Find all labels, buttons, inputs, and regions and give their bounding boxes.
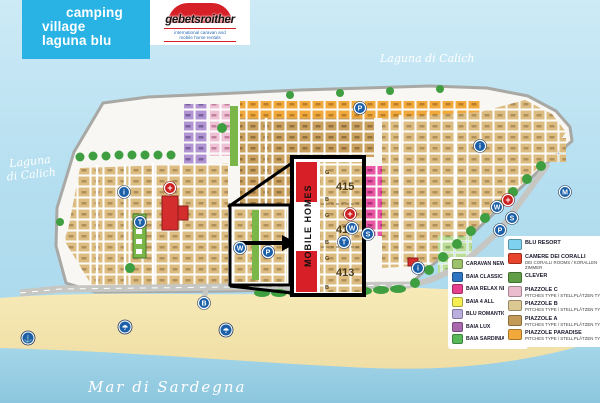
svg-text:G: G: [325, 170, 329, 176]
legend-swatch: [452, 309, 463, 319]
parking-icon: P: [262, 246, 275, 259]
shower-icon: S: [362, 228, 375, 241]
legend-swatch: [508, 272, 522, 283]
pitch-field-a-top: [292, 118, 374, 157]
title-line-2: village: [22, 20, 150, 34]
svg-text:B: B: [201, 301, 206, 308]
camere-dei-coralli-building: [162, 196, 178, 230]
svg-text:B: B: [325, 240, 329, 246]
phone-icon: T: [134, 216, 147, 229]
sea-label: Mar di Sardegna: [88, 378, 246, 396]
legend-item: PIAZZOLE APITCHES TYPE / STELLPLÄTZEN TY…: [508, 315, 600, 327]
pitch-field-purple: [184, 104, 208, 164]
first-aid-icon: +: [344, 208, 357, 221]
logo-rule: [164, 41, 236, 42]
svg-text:i: i: [479, 144, 481, 151]
campsite-map: MOBILE HOMES G 415 B G 414 B G 413 B i T…: [0, 0, 600, 403]
wc-icon: W: [234, 242, 247, 255]
anchor-icon: ⚓: [21, 331, 35, 345]
legend-swatch: [452, 297, 463, 307]
legend-swatch: [508, 253, 522, 264]
legend-swatch: [508, 315, 522, 326]
svg-text:P: P: [358, 106, 363, 113]
legend-item: CLEVER: [508, 272, 600, 283]
legend-item: PIAZZOLE BPITCHES TYPE / STELLPLÄTZEN TY…: [508, 300, 600, 312]
svg-text:+: +: [505, 195, 510, 205]
legend-item: PIAZZOLE CPITCHES TYPE / STELLPLÄTZEN TY…: [508, 286, 600, 298]
legend-swatch: [452, 322, 463, 332]
svg-text:⚓: ⚓: [24, 334, 33, 343]
svg-text:S: S: [510, 216, 515, 223]
legend-swatch: [452, 334, 463, 344]
phone-icon: T: [338, 236, 351, 249]
mobile-homes-title: MOBILE HOMES: [303, 184, 313, 267]
section-415: 415: [336, 181, 354, 193]
info-icon: i: [118, 186, 131, 199]
legend-swatch: [508, 329, 522, 340]
clever-strip: [230, 106, 238, 166]
shower-icon: S: [506, 212, 519, 225]
info-icon: i: [412, 262, 425, 275]
svg-text:W: W: [494, 205, 501, 212]
parking-icon: P: [494, 224, 507, 237]
section-413: 413: [336, 267, 354, 279]
svg-text:G: G: [325, 213, 329, 219]
lagoon-label-left: Laguna di Calich: [5, 152, 57, 183]
bus-stop-icon: B: [198, 297, 211, 310]
svg-text:S: S: [366, 232, 371, 239]
svg-text:B: B: [325, 197, 329, 203]
title-line-3: laguna blu: [22, 34, 150, 48]
gebetsroither-logo: gebetsroither international caravan and …: [150, 0, 250, 45]
info-icon: i: [474, 140, 487, 153]
wc-icon: W: [491, 201, 504, 214]
first-aid-icon: +: [164, 182, 177, 195]
pitch-field-relax-magenta: [366, 166, 382, 236]
legend-areas: BLU RESORT CAMERE DEI CORALLIDEI CORALLI…: [504, 236, 600, 347]
svg-text:+: +: [347, 209, 352, 219]
lagoon-label-top: Laguna di Calich: [380, 52, 474, 65]
svg-text:T: T: [138, 220, 143, 227]
title-line-1: camping: [22, 6, 150, 20]
legend-swatch: [452, 272, 463, 282]
legend-item: PIAZZOLE PARADISEPITCHES TYPE / STELLPLÄ…: [508, 329, 600, 341]
market-icon: M: [559, 186, 572, 199]
svg-text:T: T: [342, 240, 347, 247]
svg-text:+: +: [167, 183, 172, 193]
svg-text:M: M: [562, 190, 568, 197]
legend-item: CAMERE DEI CORALLIDEI CORALLI ROOMS / KO…: [508, 253, 600, 270]
parking-icon: P: [354, 102, 367, 115]
svg-text:i: i: [417, 266, 419, 273]
svg-text:i: i: [123, 190, 125, 197]
legend-swatch: [452, 259, 463, 269]
svg-text:B: B: [325, 285, 329, 291]
logo-name: gebetsroither: [150, 14, 250, 26]
svg-text:☂: ☂: [223, 327, 230, 335]
legend-item: BLU RESORT: [508, 239, 600, 250]
svg-text:W: W: [349, 226, 356, 233]
umbrella-icon: ☂: [219, 323, 233, 337]
svg-text:W: W: [237, 246, 244, 253]
legend-swatch: [452, 284, 463, 294]
svg-text:G: G: [325, 256, 329, 262]
umbrella-icon: ☂: [118, 320, 132, 334]
svg-text:P: P: [498, 228, 503, 235]
logo-rule: [164, 28, 236, 29]
legend-swatch: [508, 300, 522, 311]
first-aid-icon: +: [502, 194, 515, 207]
legend-swatch: [508, 239, 522, 250]
legend-swatch: [508, 286, 522, 297]
logo-tagline: international caravan and mobile home re…: [150, 30, 250, 40]
wc-icon: W: [346, 222, 359, 235]
pitch-field-corner: [528, 138, 566, 162]
svg-text:P: P: [266, 250, 271, 257]
svg-text:☂: ☂: [122, 324, 129, 332]
site-title: camping village laguna blu: [22, 0, 150, 59]
